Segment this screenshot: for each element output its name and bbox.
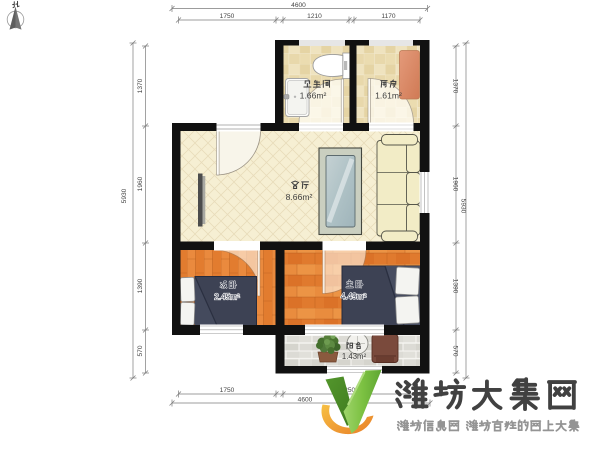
svg-text:570: 570: [452, 345, 459, 356]
svg-text:2.45m²: 2.45m²: [214, 293, 240, 302]
svg-text:4600: 4600: [298, 396, 313, 403]
svg-text:1210: 1210: [307, 13, 322, 20]
svg-text:1.66m²: 1.66m²: [300, 91, 327, 101]
svg-text:570: 570: [137, 345, 144, 356]
svg-text:5930: 5930: [121, 188, 128, 203]
svg-text:1.43m²: 1.43m²: [342, 352, 367, 361]
svg-text:1170: 1170: [381, 13, 396, 20]
svg-text:5930: 5930: [460, 199, 467, 214]
svg-text:1370: 1370: [452, 79, 459, 94]
svg-text:4600: 4600: [291, 2, 306, 9]
svg-text:1390: 1390: [452, 279, 459, 294]
svg-text:1960: 1960: [452, 177, 459, 192]
svg-text:1750: 1750: [220, 387, 235, 394]
svg-text:1750: 1750: [220, 13, 235, 20]
svg-text:1.61m²: 1.61m²: [375, 91, 402, 101]
svg-text:1370: 1370: [137, 78, 144, 93]
svg-text:1960: 1960: [137, 176, 144, 191]
svg-text:8.66m²: 8.66m²: [286, 192, 313, 202]
svg-text:1390: 1390: [137, 278, 144, 293]
svg-text:4.49m²: 4.49m²: [341, 292, 367, 301]
